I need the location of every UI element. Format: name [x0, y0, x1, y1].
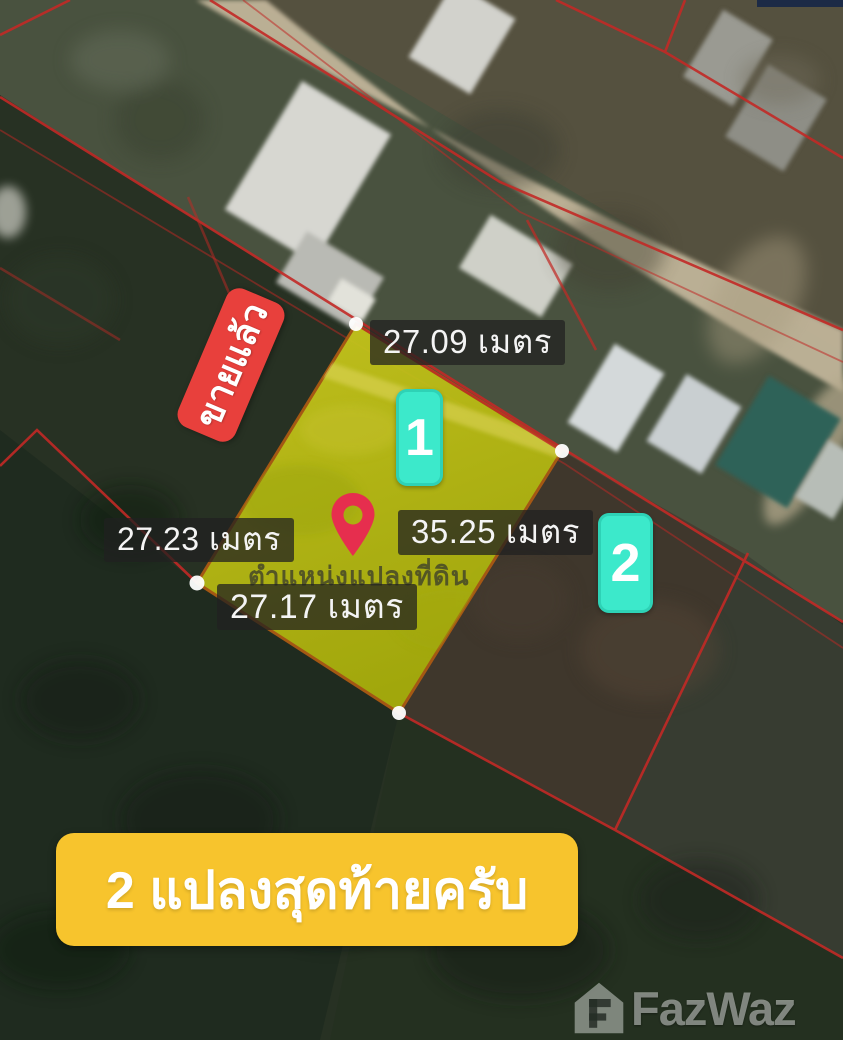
land-listing-image: ขายแล้ว 27.09 เมตร 1 27.23 เมตร 35.25 เม… — [0, 0, 843, 1040]
promo-banner-text: 2 แปลงสุดท้ายครับ — [106, 848, 528, 931]
measurement-right: 35.25 เมตร — [398, 510, 593, 555]
location-pin-icon — [327, 490, 379, 560]
measurement-top: 27.09 เมตร — [370, 320, 565, 365]
watermark: FazWaz — [572, 980, 796, 1036]
fazwaz-house-icon — [572, 981, 626, 1035]
promo-banner: 2 แปลงสุดท้ายครับ — [56, 833, 578, 946]
measurement-bottom: 27.17 เมตร — [217, 584, 417, 630]
plot-number-2: 2 — [610, 532, 640, 594]
plot-number-badge-2: 2 — [598, 513, 653, 613]
plot-number-1: 1 — [405, 408, 434, 468]
top-right-strip — [757, 0, 843, 7]
plot-number-badge-1: 1 — [396, 389, 443, 486]
watermark-text: FazWaz — [631, 985, 796, 1032]
